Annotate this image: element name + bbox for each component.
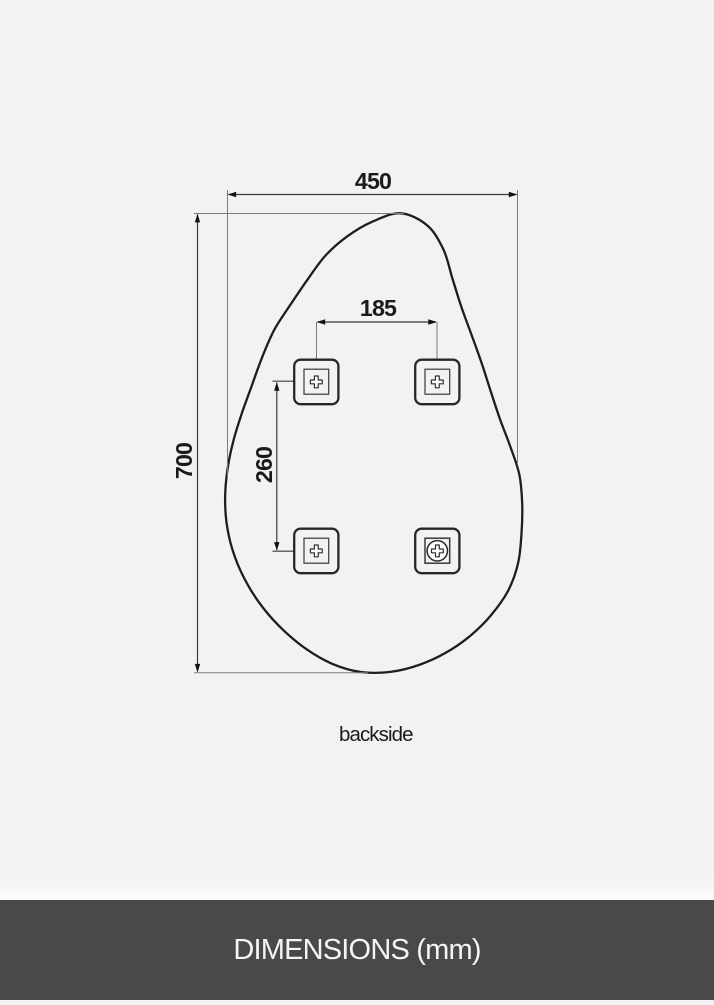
svg-text:backside: backside bbox=[339, 723, 413, 746]
svg-text:185: 185 bbox=[360, 295, 397, 321]
svg-text:700: 700 bbox=[171, 443, 197, 479]
svg-text:260: 260 bbox=[251, 447, 277, 483]
svg-text:450: 450 bbox=[355, 168, 391, 194]
